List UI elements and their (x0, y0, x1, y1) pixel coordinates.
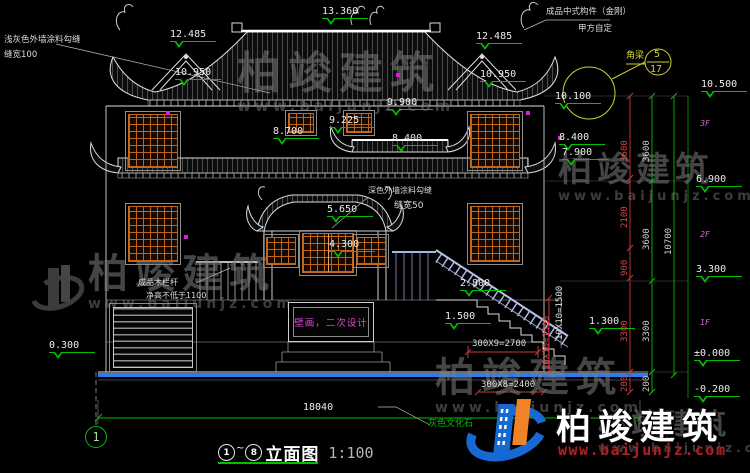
axis-bubble-1: 1 (85, 426, 107, 448)
elevation-10100: 10.100 (555, 92, 601, 112)
dim-right-total: 10700 (665, 228, 674, 255)
elevation-3300: 3.300 (696, 265, 742, 285)
cad-point-marker (184, 235, 188, 239)
window-3f-right (470, 114, 520, 168)
wall-note-light-line2: 缝宽100 (4, 51, 37, 60)
component-note-line1: 成品中式构件（金刚） (546, 8, 631, 17)
wall-note-light-line1: 浅灰色外墙涂料勾缝 (4, 36, 81, 45)
window-2f-right (470, 206, 520, 262)
cad-elevation-drawing: 柏竣建筑 www.baijunjz.com 柏竣建筑 www.baijunjz.… (0, 0, 750, 473)
dim-green-3600-a: 3600 (643, 140, 652, 162)
elevation-9900: 9.900 (387, 98, 433, 118)
dim-red-3600: 3600 (621, 140, 630, 162)
elevation-8700: 8.700 (273, 127, 319, 147)
elevation-0300: 0.300 (49, 341, 95, 361)
brand-logo-icon (462, 390, 554, 470)
elevation-12485-right: 12.485 (476, 32, 522, 52)
corner-detail-sheet: 17 (650, 65, 662, 75)
elevation-0000: ±0.000 (694, 349, 740, 369)
elevation-9225: 9.225 (329, 116, 375, 136)
wall-note-dark-line2: 缝宽50 (394, 202, 423, 211)
elevation-5650: 5.650 (327, 205, 373, 225)
railing-note-line1: 成品木栏杆 (138, 279, 178, 287)
elevation-10500: 10.500 (701, 80, 747, 100)
railing-note-line2: 净高不低于1100 (146, 292, 206, 300)
dim-green-3600-b: 3600 (643, 228, 652, 250)
dim-stair-upper-run: 300X9=2700 (472, 340, 526, 349)
brand-logo-url: www.baijunjz.com (558, 441, 727, 459)
elevation-2800: 2.800 (460, 279, 506, 299)
dim-red-900: 900 (621, 260, 630, 276)
title-axis-end: 8 (245, 444, 262, 461)
elevation-4300: 4.300 (329, 240, 375, 260)
brand-logo: 柏竣建筑 www.baijunjz.com (462, 390, 750, 473)
corner-detail-label: 角梁 (626, 52, 644, 61)
dim-stair-rise-white: 10X10=1500 (556, 286, 565, 340)
window-3f-left (128, 114, 178, 168)
dim-stair-rise-red: 10X10=1500 (543, 316, 552, 370)
elevation-10950-right: 10.950 (480, 70, 526, 90)
component-note-line2: 甲方自定 (578, 25, 612, 34)
title-tilde: ~ (236, 443, 244, 454)
dim-red-3300: 3300 (621, 320, 630, 342)
watermark-left: 柏竣建筑 www.baijunjz.com (88, 254, 295, 311)
title-scale: 1:100 (328, 444, 373, 462)
cad-point-marker (526, 111, 530, 115)
plinth-steps (276, 342, 390, 372)
title-underline (218, 462, 318, 464)
floor-label-2f: 2F (700, 230, 710, 239)
dim-total-width: 18040 (303, 403, 333, 413)
garage-door (113, 307, 193, 368)
mural-panel: 壁画，二次设计 (288, 302, 374, 342)
watermark-left-icon (28, 258, 86, 324)
floor-label-3f: 3F (700, 119, 710, 128)
cad-point-marker (396, 73, 400, 77)
elevation-13360: 13.360 (322, 7, 368, 27)
gate-panel-left (266, 237, 296, 265)
floor-label-1f: 1F (700, 318, 710, 327)
elevation-10950-left: 10.950 (175, 68, 221, 88)
window-2f-left (128, 206, 178, 262)
dim-stair-lower-run: 300X8=2400 (481, 381, 535, 390)
elevation-6900: 6.900 (696, 175, 742, 195)
corner-detail-number: 5 (654, 50, 660, 60)
mural-note: 壁画，二次设计 (294, 315, 368, 329)
dim-red-2100: 2100 (621, 206, 630, 228)
dim-green-3300: 3300 (643, 320, 652, 342)
elevation-1500: 1.500 (445, 312, 491, 332)
elevation-7900: 7.900 (562, 148, 608, 168)
elevation-12485-left: 12.485 (170, 30, 216, 50)
cad-point-marker (166, 111, 170, 115)
elevation-8400-center: 8.400 (392, 134, 438, 154)
title-axis-start: 1 (218, 444, 235, 461)
wall-note-dark-line1: 深色外墙涂料勾缝 (368, 187, 432, 195)
